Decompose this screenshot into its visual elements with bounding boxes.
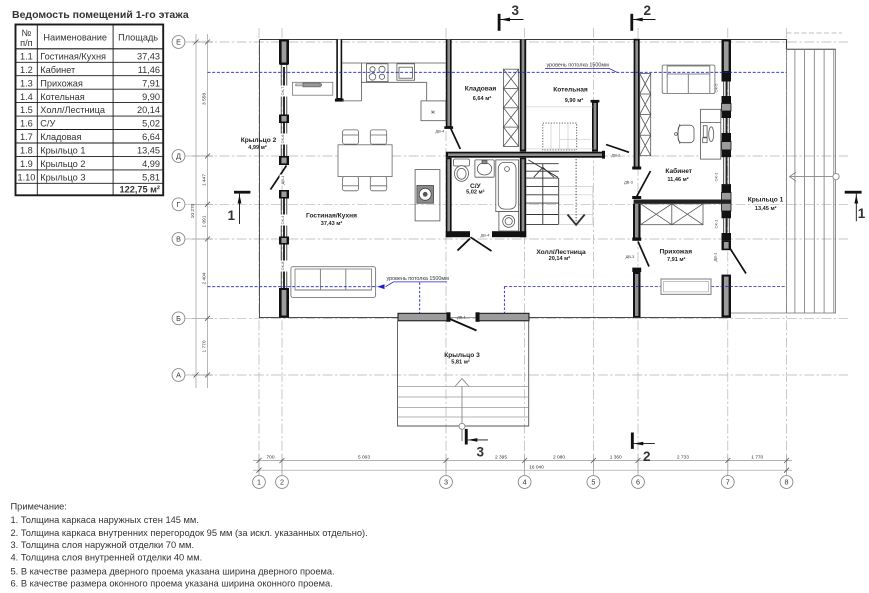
svg-text:37,43 м²: 37,43 м² (321, 220, 343, 227)
svg-text:122,75 м²: 122,75 м² (119, 185, 160, 195)
svg-text:1. Толщина каркаса наружных ст: 1. Толщина каркаса наружных стен 145 мм. (11, 515, 199, 525)
svg-text:Крыльцо 2: Крыльцо 2 (40, 159, 85, 169)
svg-text:2 395: 2 395 (495, 454, 507, 460)
svg-text:Крыльцо 1: Крыльцо 1 (748, 197, 784, 204)
svg-text:2. Толщина каркаса внутренних: 2. Толщина каркаса внутренних перегородо… (11, 528, 368, 538)
svg-text:Площадь: Площадь (118, 33, 158, 43)
svg-text:3: 3 (512, 3, 520, 18)
svg-text:Наименование: Наименование (43, 33, 107, 43)
svg-text:Холл/Лестница: Холл/Лестница (536, 249, 586, 256)
svg-text:4. Толщина слоя внутренней отд: 4. Толщина слоя внутренней отделки 40 мм… (11, 552, 203, 562)
svg-text:4: 4 (523, 478, 527, 487)
svg-text:7,91: 7,91 (142, 78, 160, 88)
svg-text:6,64 м²: 6,64 м² (473, 95, 492, 102)
svg-text:1.10: 1.10 (17, 173, 35, 183)
svg-text:А: А (176, 371, 181, 380)
svg-text:13,45 м²: 13,45 м² (755, 205, 777, 212)
svg-text:1.9: 1.9 (20, 159, 33, 169)
svg-text:1 447: 1 447 (202, 174, 208, 186)
svg-text:Кладовая: Кладовая (465, 86, 497, 93)
svg-text:9,90 м²: 9,90 м² (565, 97, 584, 104)
svg-text:2 404: 2 404 (202, 272, 208, 284)
svg-text:Крыльцо 2: Крыльцо 2 (241, 137, 277, 144)
svg-text:Кладовая: Кладовая (40, 132, 81, 142)
svg-text:Б: Б (176, 314, 181, 323)
svg-text:11,46: 11,46 (138, 65, 160, 75)
svg-text:9,90: 9,90 (142, 92, 160, 102)
svg-text:1 091: 1 091 (202, 215, 208, 227)
svg-text:7: 7 (726, 478, 730, 487)
svg-text:3: 3 (477, 445, 485, 460)
svg-text:1.8: 1.8 (20, 146, 33, 156)
svg-text:ОК-1: ОК-1 (714, 220, 719, 229)
svg-text:5,81 м²: 5,81 м² (451, 358, 470, 365)
svg-text:уровень потолка 1500мм: уровень потолка 1500мм (387, 276, 450, 282)
svg-text:ОК-6: ОК-6 (280, 135, 285, 144)
svg-text:1 770: 1 770 (751, 454, 763, 460)
svg-text:ОК-7: ОК-7 (280, 87, 285, 96)
svg-text:37,43: 37,43 (137, 51, 160, 61)
svg-text:С/У: С/У (40, 119, 55, 129)
svg-text:Примечание:: Примечание: (11, 502, 67, 512)
svg-text:ДВ-1: ДВ-1 (457, 314, 466, 319)
svg-text:2: 2 (644, 3, 652, 18)
svg-text:2: 2 (280, 478, 284, 487)
svg-text:Гостиная/Кухня: Гостиная/Кухня (40, 51, 106, 61)
svg-text:8: 8 (785, 478, 789, 487)
svg-text:3: 3 (444, 478, 448, 487)
svg-text:ДВ-2: ДВ-2 (612, 153, 621, 158)
svg-text:4,99 м²: 4,99 м² (248, 144, 267, 151)
svg-text:ДВ-3: ДВ-3 (624, 179, 633, 184)
svg-text:ОК-4: ОК-4 (280, 215, 285, 225)
svg-text:700: 700 (266, 454, 274, 460)
svg-text:1.4: 1.4 (20, 92, 33, 102)
svg-text:ж: ж (431, 110, 435, 116)
svg-text:ДВ-4: ДВ-4 (481, 232, 491, 237)
svg-text:1: 1 (858, 206, 866, 221)
svg-text:уровень потолка 1500мм: уровень потолка 1500мм (547, 62, 610, 68)
svg-text:13,45: 13,45 (137, 146, 160, 156)
svg-text:1.3: 1.3 (20, 78, 33, 88)
svg-text:11,46 м²: 11,46 м² (667, 176, 688, 183)
svg-text:В: В (176, 235, 181, 244)
svg-text:Крыльцо 1: Крыльцо 1 (40, 146, 85, 156)
svg-text:1 360: 1 360 (610, 454, 622, 460)
svg-text:Гостиная/Кухня: Гостиная/Кухня (306, 212, 357, 219)
svg-text:1: 1 (228, 208, 236, 223)
svg-text:20,14: 20,14 (137, 105, 160, 115)
svg-text:6: 6 (636, 478, 640, 487)
svg-text:4,99: 4,99 (142, 159, 160, 169)
svg-text:Котельная: Котельная (553, 87, 588, 94)
svg-text:6,64: 6,64 (142, 132, 160, 142)
svg-text:Ведомость помещений 1-го этажа: Ведомость помещений 1-го этажа (12, 9, 189, 21)
svg-text:Кабинет: Кабинет (40, 65, 76, 75)
svg-text:1.2: 1.2 (20, 65, 33, 75)
svg-text:5,81: 5,81 (142, 173, 160, 183)
svg-text:1.5: 1.5 (20, 105, 33, 115)
svg-text:Г: Г (177, 200, 181, 209)
svg-text:1: 1 (257, 478, 261, 487)
svg-text:2: 2 (643, 449, 651, 464)
svg-text:1.6: 1.6 (20, 119, 33, 129)
svg-text:3. Толщина слоя наружной отдел: 3. Толщина слоя наружной отделки 70 мм. (11, 540, 195, 550)
svg-text:ДВ-3: ДВ-3 (626, 254, 635, 259)
svg-text:20,14 м²: 20,14 м² (549, 255, 571, 262)
svg-text:Холл/Лестница: Холл/Лестница (40, 105, 106, 115)
svg-text:6. В качестве размера оконного: 6. В качестве размера оконного проема ук… (11, 578, 333, 588)
svg-text:1.1: 1.1 (20, 51, 33, 61)
svg-text:5 003: 5 003 (358, 454, 370, 460)
svg-text:5. В качестве размера дверного: 5. В качестве размера дверного проема ук… (11, 567, 335, 577)
svg-text:1.7: 1.7 (20, 132, 33, 142)
svg-text:10 270: 10 270 (190, 203, 196, 218)
svg-text:ОК-8: ОК-8 (280, 262, 285, 271)
svg-text:ОК-2: ОК-2 (714, 173, 719, 182)
svg-text:5,02 м²: 5,02 м² (466, 189, 485, 196)
svg-text:п/п: п/п (20, 38, 33, 48)
svg-text:Д: Д (176, 152, 181, 161)
svg-text:Кабинет: Кабинет (665, 167, 692, 175)
svg-text:7,91 м²: 7,91 м² (667, 256, 686, 263)
svg-text:5: 5 (591, 478, 595, 487)
svg-text:5,02: 5,02 (142, 119, 160, 129)
svg-text:Крыльцо 3: Крыльцо 3 (444, 352, 480, 359)
svg-text:2 733: 2 733 (677, 454, 689, 460)
svg-text:3 558: 3 558 (202, 93, 208, 105)
svg-text:2 080: 2 080 (553, 454, 565, 460)
svg-text:ДВ-4: ДВ-4 (436, 129, 446, 134)
svg-text:1 770: 1 770 (202, 340, 208, 352)
svg-text:Прихожая: Прихожая (660, 249, 693, 256)
svg-text:Е: Е (176, 38, 181, 47)
svg-text:16 040: 16 040 (529, 465, 544, 471)
svg-text:Крыльцо 3: Крыльцо 3 (40, 173, 85, 183)
svg-text:ДВ-1: ДВ-1 (280, 176, 285, 185)
svg-text:ДВ-1: ДВ-1 (713, 253, 718, 262)
svg-text:№: № (21, 28, 31, 38)
svg-text:Котельная: Котельная (40, 92, 84, 102)
svg-text:Прихожая: Прихожая (40, 78, 83, 88)
